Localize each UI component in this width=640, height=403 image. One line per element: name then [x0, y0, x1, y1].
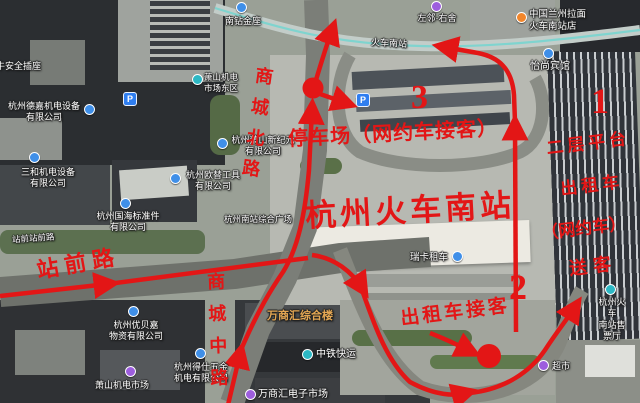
poi-label-wanshanghui: 万商汇综合楼	[267, 310, 333, 324]
poi-label-outi: 杭州欧替工具 有限公司	[186, 170, 240, 193]
poi-label-ruika: 瑞卡租车	[410, 252, 448, 264]
red-marker-3: 3	[411, 79, 428, 117]
poi-icon	[236, 2, 247, 13]
poi-label-chaoshi: 超市	[552, 361, 570, 372]
poi-label-jidian-east: 萧山机电 市场东区	[204, 72, 238, 93]
satellite-map: 南钻金座 牛安全插座 杭州德嘉机电设备 有限公司 三和机电设备 有限公司 杭州国…	[0, 0, 640, 403]
parking-icon: P	[123, 92, 137, 106]
parking-icon: P	[356, 93, 370, 107]
poi-icon	[170, 173, 181, 184]
poi-icon	[543, 48, 554, 59]
road-label-huoche-nanzhan: 火车南站	[371, 37, 408, 50]
poi-label-nanzuan: 南钻金座	[225, 16, 261, 27]
poi-icon	[128, 306, 139, 317]
poi-label-guohai: 杭州国海标准件 有限公司	[96, 211, 159, 234]
poi-icon	[125, 366, 136, 377]
poi-icon	[120, 198, 131, 209]
poi-label-sanhe: 三和机电设备 有限公司	[21, 167, 75, 190]
poi-icon	[217, 138, 228, 149]
poi-label-shoupiaoting: 杭州火车 南站售票厅	[598, 297, 626, 342]
red-marker-2: 2	[509, 266, 527, 308]
poi-label-lanzhou: 中国兰州拉面 火车南站店	[529, 9, 586, 33]
poi-icon	[431, 1, 442, 12]
poi-icon	[192, 74, 203, 85]
poi-icon	[302, 349, 313, 360]
poi-label-nanzhan-plaza: 杭州南站综合广场	[224, 214, 292, 225]
route-dot-parking	[303, 78, 324, 99]
route-dot-taxi	[477, 344, 501, 368]
poi-label-wanshanghui-elec: 万商汇电子市场	[258, 389, 328, 402]
poi-label-zhongtie: 中铁快运	[316, 349, 356, 362]
poi-icon	[538, 360, 549, 371]
poi-label-jidian-market: 萧山机电市场	[95, 380, 149, 391]
poi-label-anquan: 牛安全插座	[0, 61, 41, 72]
poi-icon	[516, 12, 527, 23]
poi-label-youbeijia: 杭州优贝嘉 物资有限公司	[109, 320, 163, 343]
poi-label-yishang: 怡尚宾馆	[530, 61, 570, 74]
poi-icon	[84, 104, 95, 115]
road-station-loop	[338, 55, 542, 166]
red-road-label-shangcheng-middle: 商城中路	[202, 272, 232, 401]
poi-icon	[605, 284, 616, 295]
poi-icon	[245, 389, 256, 400]
poi-label-zuolin: 左邻·右舍	[418, 13, 457, 24]
red-marker-1: 1	[591, 80, 609, 122]
poi-icon	[29, 152, 40, 163]
car-icon	[452, 251, 463, 262]
poi-label-dejia: 杭州德嘉机电设备 有限公司	[8, 101, 80, 124]
